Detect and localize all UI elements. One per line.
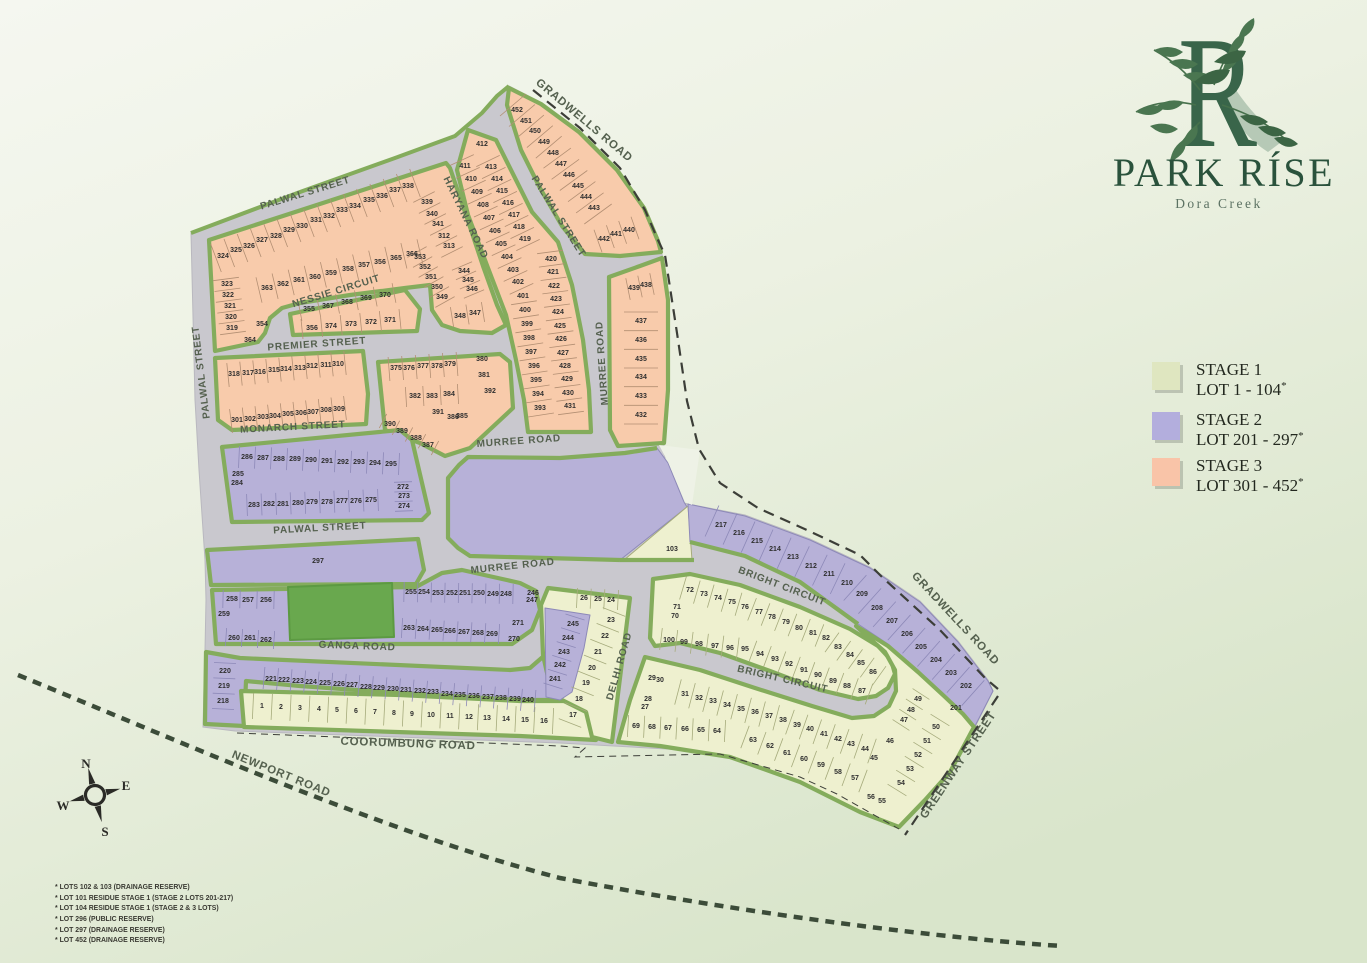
svg-text:344: 344 bbox=[458, 268, 470, 275]
svg-text:294: 294 bbox=[369, 460, 381, 467]
svg-text:7: 7 bbox=[373, 709, 377, 716]
svg-text:34: 34 bbox=[723, 702, 731, 709]
svg-text:STAGE 3: STAGE 3 bbox=[1196, 456, 1262, 475]
svg-text:244: 244 bbox=[562, 635, 574, 642]
svg-text:65: 65 bbox=[697, 727, 705, 734]
svg-text:72: 72 bbox=[686, 587, 694, 594]
svg-text:31: 31 bbox=[681, 691, 689, 698]
svg-text:432: 432 bbox=[635, 412, 647, 419]
svg-text:337: 337 bbox=[389, 187, 401, 194]
svg-text:15: 15 bbox=[521, 717, 529, 724]
svg-text:24: 24 bbox=[607, 597, 615, 604]
svg-text:350: 350 bbox=[431, 284, 443, 291]
svg-text:69: 69 bbox=[632, 723, 640, 730]
svg-text:98: 98 bbox=[695, 641, 703, 648]
svg-text:313: 313 bbox=[443, 243, 455, 250]
svg-text:243: 243 bbox=[558, 649, 570, 656]
svg-text:415: 415 bbox=[496, 188, 508, 195]
svg-text:438: 438 bbox=[640, 282, 652, 289]
svg-text:365: 365 bbox=[390, 255, 402, 262]
svg-text:318: 318 bbox=[228, 371, 240, 378]
svg-text:312: 312 bbox=[438, 233, 450, 240]
svg-text:381: 381 bbox=[478, 372, 490, 379]
svg-text:88: 88 bbox=[843, 683, 851, 690]
svg-text:100: 100 bbox=[663, 637, 675, 644]
svg-text:339: 339 bbox=[421, 199, 433, 206]
svg-text:21: 21 bbox=[594, 649, 602, 656]
svg-text:258: 258 bbox=[226, 596, 238, 603]
svg-text:307: 307 bbox=[307, 409, 319, 416]
svg-text:383: 383 bbox=[426, 393, 438, 400]
svg-text:23: 23 bbox=[607, 617, 615, 624]
svg-text:430: 430 bbox=[562, 390, 574, 397]
svg-text:373: 373 bbox=[345, 321, 357, 328]
svg-text:Dora Creek: Dora Creek bbox=[1175, 196, 1263, 211]
svg-text:219: 219 bbox=[218, 683, 230, 690]
svg-text:247: 247 bbox=[526, 597, 538, 604]
svg-text:280: 280 bbox=[292, 500, 304, 507]
svg-text:452: 452 bbox=[511, 107, 523, 114]
svg-text:288: 288 bbox=[273, 456, 285, 463]
svg-text:W: W bbox=[57, 798, 70, 813]
svg-text:230: 230 bbox=[387, 686, 399, 693]
svg-text:60: 60 bbox=[800, 756, 808, 763]
svg-text:361: 361 bbox=[293, 277, 305, 284]
svg-text:71: 71 bbox=[673, 604, 681, 611]
svg-text:405: 405 bbox=[495, 241, 507, 248]
svg-text:STAGE 2: STAGE 2 bbox=[1196, 410, 1262, 429]
svg-text:421: 421 bbox=[547, 269, 559, 276]
svg-text:261: 261 bbox=[244, 635, 256, 642]
svg-text:297: 297 bbox=[312, 558, 324, 565]
svg-text:435: 435 bbox=[635, 356, 647, 363]
svg-text:LOT 301 - 452*: LOT 301 - 452* bbox=[1196, 476, 1304, 495]
svg-text:429: 429 bbox=[561, 376, 573, 383]
svg-text:445: 445 bbox=[572, 183, 584, 190]
svg-text:274: 274 bbox=[398, 503, 410, 510]
svg-text:97: 97 bbox=[711, 643, 719, 650]
svg-text:255: 255 bbox=[405, 589, 417, 596]
svg-text:265: 265 bbox=[431, 627, 443, 634]
svg-text:203: 203 bbox=[945, 670, 957, 677]
svg-text:232: 232 bbox=[414, 688, 426, 695]
svg-text:291: 291 bbox=[321, 458, 333, 465]
svg-text:226: 226 bbox=[333, 681, 345, 688]
svg-text:269: 269 bbox=[486, 631, 498, 638]
svg-text:217: 217 bbox=[715, 522, 727, 529]
svg-text:1: 1 bbox=[260, 703, 264, 710]
svg-text:413: 413 bbox=[485, 164, 497, 171]
svg-text:238: 238 bbox=[495, 695, 507, 702]
svg-text:358: 358 bbox=[342, 266, 354, 273]
svg-text:376: 376 bbox=[403, 365, 415, 372]
svg-text:270: 270 bbox=[508, 636, 520, 643]
svg-text:450: 450 bbox=[529, 128, 541, 135]
svg-text:26: 26 bbox=[580, 595, 588, 602]
svg-text:66: 66 bbox=[681, 726, 689, 733]
svg-text:408: 408 bbox=[477, 202, 489, 209]
svg-text:28: 28 bbox=[644, 696, 652, 703]
svg-text:308: 308 bbox=[320, 407, 332, 414]
svg-text:246: 246 bbox=[527, 590, 539, 597]
svg-text:412: 412 bbox=[476, 141, 488, 148]
svg-text:87: 87 bbox=[858, 688, 866, 695]
svg-text:382: 382 bbox=[409, 393, 421, 400]
svg-text:409: 409 bbox=[471, 189, 483, 196]
svg-text:33: 33 bbox=[709, 698, 717, 705]
svg-text:267: 267 bbox=[458, 629, 470, 636]
svg-text:266: 266 bbox=[444, 628, 456, 635]
svg-text:396: 396 bbox=[528, 363, 540, 370]
svg-text:349: 349 bbox=[436, 294, 448, 301]
svg-text:281: 281 bbox=[277, 501, 289, 508]
svg-text:328: 328 bbox=[270, 233, 282, 240]
svg-text:256: 256 bbox=[260, 597, 272, 604]
svg-text:40: 40 bbox=[806, 726, 814, 733]
svg-text:223: 223 bbox=[292, 678, 304, 685]
svg-text:210: 210 bbox=[841, 580, 853, 587]
svg-text:392: 392 bbox=[484, 388, 496, 395]
svg-text:254: 254 bbox=[418, 589, 430, 596]
svg-text:44: 44 bbox=[861, 746, 869, 753]
svg-text:364: 364 bbox=[244, 337, 256, 344]
svg-text:420: 420 bbox=[545, 256, 557, 263]
svg-text:84: 84 bbox=[846, 652, 854, 659]
svg-text:67: 67 bbox=[664, 725, 672, 732]
svg-text:250: 250 bbox=[473, 590, 485, 597]
svg-text:295: 295 bbox=[385, 461, 397, 468]
svg-text:43: 43 bbox=[847, 741, 855, 748]
svg-text:338: 338 bbox=[402, 183, 414, 190]
svg-text:388: 388 bbox=[410, 435, 422, 442]
svg-text:434: 434 bbox=[635, 374, 647, 381]
svg-text:334: 334 bbox=[349, 203, 361, 210]
svg-text:19: 19 bbox=[582, 680, 590, 687]
svg-text:448: 448 bbox=[547, 150, 559, 157]
svg-text:68: 68 bbox=[648, 724, 656, 731]
svg-text:277: 277 bbox=[336, 498, 348, 505]
svg-text:* LOTS 102 & 103 (DRAINAGE RES: * LOTS 102 & 103 (DRAINAGE RESERVE) bbox=[55, 884, 190, 891]
svg-text:52: 52 bbox=[914, 752, 922, 759]
svg-text:22: 22 bbox=[601, 633, 609, 640]
svg-text:227: 227 bbox=[346, 682, 358, 689]
svg-text:231: 231 bbox=[400, 687, 412, 694]
svg-text:207: 207 bbox=[886, 618, 898, 625]
svg-text:218: 218 bbox=[217, 698, 229, 705]
svg-text:333: 333 bbox=[336, 207, 348, 214]
svg-text:93: 93 bbox=[771, 656, 779, 663]
svg-text:94: 94 bbox=[756, 651, 764, 658]
svg-text:441: 441 bbox=[610, 231, 622, 238]
svg-text:260: 260 bbox=[228, 635, 240, 642]
svg-text:407: 407 bbox=[483, 215, 495, 222]
svg-text:303: 303 bbox=[257, 414, 269, 421]
svg-text:49: 49 bbox=[914, 696, 922, 703]
svg-text:78: 78 bbox=[768, 614, 776, 621]
svg-text:372: 372 bbox=[365, 319, 377, 326]
svg-text:61: 61 bbox=[783, 750, 791, 757]
svg-text:240: 240 bbox=[522, 697, 534, 704]
svg-text:* LOT 104 RESIDUE STAGE 1 (STA: * LOT 104 RESIDUE STAGE 1 (STAGE 2 & 3 L… bbox=[55, 905, 219, 912]
svg-text:360: 360 bbox=[309, 274, 321, 281]
svg-text:32: 32 bbox=[695, 695, 703, 702]
svg-text:264: 264 bbox=[417, 626, 429, 633]
svg-text:16: 16 bbox=[540, 718, 548, 725]
svg-text:370: 370 bbox=[379, 292, 391, 299]
svg-text:234: 234 bbox=[441, 691, 453, 698]
svg-text:204: 204 bbox=[930, 657, 942, 664]
svg-text:99: 99 bbox=[680, 639, 688, 646]
svg-text:356: 356 bbox=[374, 259, 386, 266]
svg-text:410: 410 bbox=[465, 176, 477, 183]
svg-text:425: 425 bbox=[554, 323, 566, 330]
svg-text:282: 282 bbox=[263, 501, 275, 508]
svg-text:279: 279 bbox=[306, 499, 318, 506]
svg-text:451: 451 bbox=[520, 118, 532, 125]
svg-text:81: 81 bbox=[809, 630, 817, 637]
svg-text:335: 335 bbox=[363, 197, 375, 204]
svg-text:212: 212 bbox=[805, 563, 817, 570]
svg-text:315: 315 bbox=[268, 367, 280, 374]
svg-text:20: 20 bbox=[588, 665, 596, 672]
svg-text:330: 330 bbox=[296, 223, 308, 230]
svg-text:416: 416 bbox=[502, 200, 514, 207]
svg-text:268: 268 bbox=[472, 630, 484, 637]
svg-text:368: 368 bbox=[341, 299, 353, 306]
svg-text:394: 394 bbox=[532, 391, 544, 398]
svg-text:73: 73 bbox=[700, 591, 708, 598]
svg-text:216: 216 bbox=[733, 530, 745, 537]
svg-text:* LOT 296 (PUBLIC RESERVE): * LOT 296 (PUBLIC RESERVE) bbox=[55, 916, 154, 923]
svg-text:278: 278 bbox=[321, 499, 333, 506]
svg-text:252: 252 bbox=[446, 590, 458, 597]
svg-text:LOT 201 - 297*: LOT 201 - 297* bbox=[1196, 430, 1304, 449]
svg-text:389: 389 bbox=[396, 428, 408, 435]
svg-text:341: 341 bbox=[432, 221, 444, 228]
svg-text:402: 402 bbox=[512, 279, 524, 286]
svg-text:290: 290 bbox=[305, 457, 317, 464]
svg-text:326: 326 bbox=[243, 243, 255, 250]
svg-text:51: 51 bbox=[923, 738, 931, 745]
svg-text:380: 380 bbox=[476, 356, 488, 363]
svg-text:257: 257 bbox=[242, 597, 254, 604]
svg-text:305: 305 bbox=[282, 411, 294, 418]
svg-text:354: 354 bbox=[256, 321, 268, 328]
svg-text:262: 262 bbox=[260, 637, 272, 644]
svg-text:235: 235 bbox=[454, 692, 466, 699]
svg-text:351: 351 bbox=[425, 274, 437, 281]
svg-text:353: 353 bbox=[414, 254, 426, 261]
svg-text:STAGE 1: STAGE 1 bbox=[1196, 360, 1262, 379]
svg-text:436: 436 bbox=[635, 337, 647, 344]
svg-text:422: 422 bbox=[548, 283, 560, 290]
svg-text:39: 39 bbox=[793, 722, 801, 729]
svg-text:47: 47 bbox=[900, 717, 908, 724]
svg-text:245: 245 bbox=[567, 621, 579, 628]
svg-text:222: 222 bbox=[278, 677, 290, 684]
svg-text:205: 205 bbox=[915, 644, 927, 651]
svg-text:213: 213 bbox=[787, 554, 799, 561]
svg-text:325: 325 bbox=[230, 247, 242, 254]
svg-text:10: 10 bbox=[427, 712, 435, 719]
svg-text:400: 400 bbox=[519, 307, 531, 314]
svg-text:374: 374 bbox=[325, 323, 337, 330]
svg-text:419: 419 bbox=[519, 236, 531, 243]
svg-text:426: 426 bbox=[555, 336, 567, 343]
svg-text:91: 91 bbox=[800, 667, 808, 674]
svg-text:37: 37 bbox=[765, 713, 773, 720]
svg-text:75: 75 bbox=[728, 599, 736, 606]
svg-text:237: 237 bbox=[482, 694, 494, 701]
svg-text:414: 414 bbox=[491, 176, 503, 183]
svg-text:440: 440 bbox=[623, 227, 635, 234]
svg-text:85: 85 bbox=[857, 660, 865, 667]
svg-text:83: 83 bbox=[834, 644, 842, 651]
svg-text:E: E bbox=[122, 778, 131, 793]
svg-text:50: 50 bbox=[932, 724, 940, 731]
svg-text:321: 321 bbox=[224, 303, 236, 310]
svg-text:393: 393 bbox=[534, 405, 546, 412]
svg-text:27: 27 bbox=[641, 704, 649, 711]
svg-text:348: 348 bbox=[454, 313, 466, 320]
svg-text:201: 201 bbox=[950, 705, 962, 712]
svg-text:221: 221 bbox=[265, 676, 277, 683]
svg-text:55: 55 bbox=[878, 798, 886, 805]
svg-text:378: 378 bbox=[431, 363, 443, 370]
svg-text:77: 77 bbox=[755, 609, 763, 616]
svg-text:446: 446 bbox=[563, 172, 575, 179]
svg-text:248: 248 bbox=[500, 591, 512, 598]
svg-text:25: 25 bbox=[594, 596, 602, 603]
svg-text:17: 17 bbox=[569, 712, 577, 719]
svg-text:302: 302 bbox=[244, 416, 256, 423]
svg-text:377: 377 bbox=[417, 363, 429, 370]
svg-text:371: 371 bbox=[384, 317, 396, 324]
svg-text:431: 431 bbox=[564, 403, 576, 410]
svg-text:70: 70 bbox=[671, 613, 679, 620]
svg-text:225: 225 bbox=[319, 680, 331, 687]
svg-text:271: 271 bbox=[512, 620, 524, 627]
svg-text:63: 63 bbox=[749, 737, 757, 744]
svg-text:444: 444 bbox=[580, 194, 592, 201]
svg-text:48: 48 bbox=[907, 707, 915, 714]
svg-text:4: 4 bbox=[317, 706, 321, 713]
svg-text:202: 202 bbox=[960, 683, 972, 690]
svg-text:314: 314 bbox=[280, 366, 292, 373]
svg-text:443: 443 bbox=[588, 205, 600, 212]
svg-text:LOT 1 - 104*: LOT 1 - 104* bbox=[1196, 380, 1287, 399]
svg-text:418: 418 bbox=[513, 224, 525, 231]
svg-text:329: 329 bbox=[283, 227, 295, 234]
svg-text:411: 411 bbox=[459, 163, 470, 170]
svg-text:45: 45 bbox=[870, 755, 878, 762]
svg-text:355: 355 bbox=[303, 306, 315, 313]
svg-text:403: 403 bbox=[507, 267, 519, 274]
svg-text:242: 242 bbox=[554, 662, 566, 669]
svg-text:214: 214 bbox=[769, 546, 781, 553]
svg-text:306: 306 bbox=[295, 410, 307, 417]
svg-text:356: 356 bbox=[306, 325, 318, 332]
svg-text:324: 324 bbox=[217, 253, 229, 260]
svg-text:208: 208 bbox=[871, 605, 883, 612]
svg-text:284: 284 bbox=[231, 480, 243, 487]
svg-text:442: 442 bbox=[598, 236, 610, 243]
svg-text:331: 331 bbox=[310, 217, 322, 224]
svg-text:56: 56 bbox=[867, 794, 875, 801]
svg-text:439: 439 bbox=[628, 285, 640, 292]
svg-text:53: 53 bbox=[906, 766, 914, 773]
svg-text:384: 384 bbox=[443, 391, 455, 398]
svg-text:272: 272 bbox=[397, 484, 409, 491]
svg-text:449: 449 bbox=[538, 139, 550, 146]
svg-text:309: 309 bbox=[333, 406, 345, 413]
svg-text:263: 263 bbox=[403, 625, 415, 632]
svg-text:423: 423 bbox=[550, 296, 562, 303]
svg-text:239: 239 bbox=[509, 696, 521, 703]
svg-text:86: 86 bbox=[869, 669, 877, 676]
svg-text:287: 287 bbox=[257, 455, 269, 462]
svg-text:369: 369 bbox=[360, 295, 372, 302]
svg-text:209: 209 bbox=[856, 591, 868, 598]
svg-text:82: 82 bbox=[822, 635, 830, 642]
svg-text:76: 76 bbox=[741, 604, 749, 611]
svg-text:424: 424 bbox=[552, 309, 564, 316]
svg-text:229: 229 bbox=[373, 685, 385, 692]
svg-text:74: 74 bbox=[714, 595, 722, 602]
svg-text:236: 236 bbox=[468, 693, 480, 700]
svg-text:18: 18 bbox=[575, 696, 583, 703]
svg-text:428: 428 bbox=[559, 363, 571, 370]
svg-text:447: 447 bbox=[555, 161, 567, 168]
svg-text:323: 323 bbox=[221, 281, 233, 288]
svg-text:399: 399 bbox=[521, 321, 533, 328]
svg-text:312: 312 bbox=[306, 363, 318, 370]
svg-text:385: 385 bbox=[456, 413, 468, 420]
svg-text:292: 292 bbox=[337, 459, 349, 466]
svg-text:80: 80 bbox=[795, 625, 803, 632]
svg-text:224: 224 bbox=[305, 679, 317, 686]
svg-text:90: 90 bbox=[814, 672, 822, 679]
svg-text:54: 54 bbox=[897, 780, 905, 787]
svg-text:89: 89 bbox=[829, 678, 837, 685]
svg-text:275: 275 bbox=[365, 497, 377, 504]
svg-text:13: 13 bbox=[483, 715, 491, 722]
svg-text:29: 29 bbox=[648, 675, 656, 682]
svg-text:9: 9 bbox=[410, 711, 414, 718]
svg-text:311: 311 bbox=[320, 362, 331, 369]
svg-text:301: 301 bbox=[231, 417, 243, 424]
svg-text:340: 340 bbox=[426, 211, 438, 218]
svg-text:345: 345 bbox=[462, 277, 474, 284]
svg-text:322: 322 bbox=[222, 292, 234, 299]
svg-text:406: 406 bbox=[489, 228, 501, 235]
svg-text:206: 206 bbox=[901, 631, 913, 638]
svg-text:259: 259 bbox=[218, 611, 230, 618]
svg-text:313: 313 bbox=[294, 365, 306, 372]
svg-text:320: 320 bbox=[225, 314, 237, 321]
svg-text:11: 11 bbox=[446, 713, 454, 720]
svg-text:57: 57 bbox=[851, 775, 859, 782]
svg-text:285: 285 bbox=[232, 471, 244, 478]
svg-text:2: 2 bbox=[279, 704, 283, 711]
svg-text:S: S bbox=[101, 824, 108, 839]
svg-text:283: 283 bbox=[248, 502, 260, 509]
svg-text:352: 352 bbox=[419, 264, 431, 271]
svg-text:387: 387 bbox=[422, 442, 434, 449]
svg-text:* LOT 101 RESIDUE STAGE 1 (STA: * LOT 101 RESIDUE STAGE 1 (STAGE 2 LOTS … bbox=[55, 895, 233, 902]
svg-text:220: 220 bbox=[219, 668, 231, 675]
svg-text:8: 8 bbox=[392, 710, 396, 717]
